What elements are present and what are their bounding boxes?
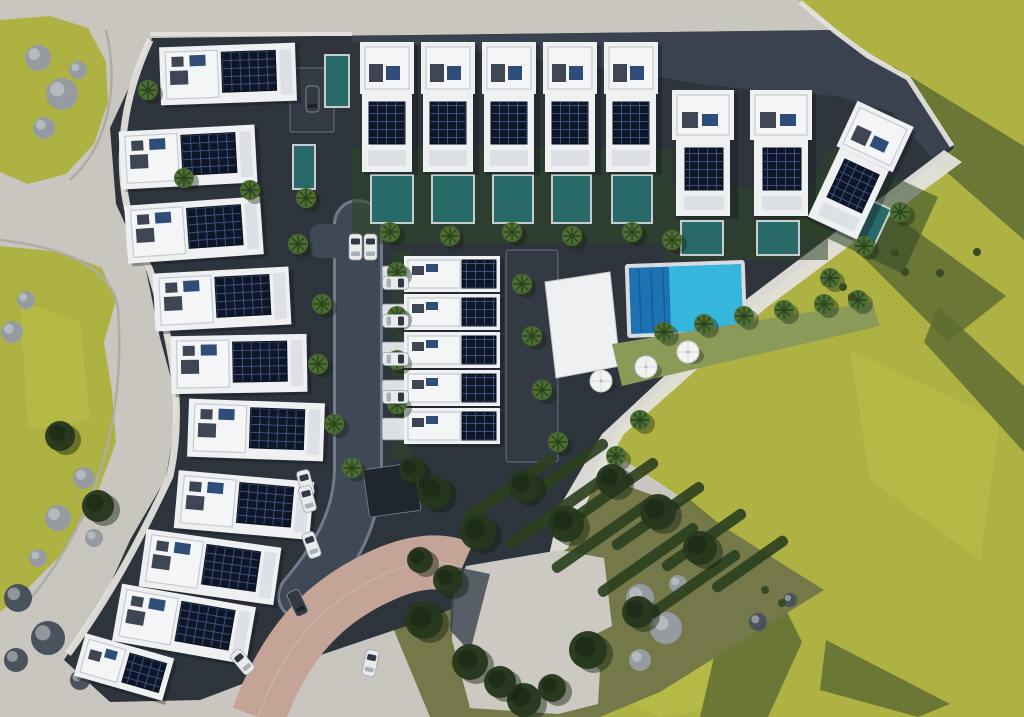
villa-roof-part xyxy=(171,57,183,67)
villa-solar-panel xyxy=(233,341,288,382)
villa-roof-part xyxy=(165,282,178,293)
plunge-pool-water xyxy=(326,56,348,106)
bush xyxy=(778,599,786,607)
car-body xyxy=(364,234,377,260)
palm-trunk-top xyxy=(395,270,400,275)
villa-roof-part xyxy=(369,64,383,82)
car-windshield xyxy=(398,279,404,288)
villa-roof-part xyxy=(185,495,204,511)
villa-roof-part xyxy=(218,409,234,421)
plunge-pool-water xyxy=(682,222,722,254)
car-rear-window xyxy=(351,252,360,257)
bush xyxy=(936,269,944,277)
villa-solar-panel xyxy=(181,133,237,176)
plunge-pool xyxy=(431,174,475,224)
bush xyxy=(839,283,847,291)
palm-trunk-top xyxy=(350,466,355,471)
villa-solar-panel xyxy=(215,275,271,318)
villa-roof-part xyxy=(447,66,461,80)
car-windshield xyxy=(351,239,360,245)
car xyxy=(306,86,319,112)
palm-trunk-top xyxy=(822,302,827,307)
villa-roof-part xyxy=(426,378,438,386)
tree-canopy-core xyxy=(541,677,556,692)
car-body xyxy=(383,277,409,290)
palm-trunk-top xyxy=(898,210,903,215)
villa-solar-panel xyxy=(462,412,496,440)
rock-highlight xyxy=(632,652,642,662)
car-windshield xyxy=(398,355,404,364)
car-rear-window xyxy=(308,104,317,109)
car-rear-window xyxy=(387,317,392,326)
villa-roof-part xyxy=(552,64,566,82)
villa-roof-part xyxy=(155,212,172,224)
rock-highlight xyxy=(28,48,40,60)
villa-roof-part xyxy=(189,55,205,67)
palm-trunk-top xyxy=(448,234,453,239)
car xyxy=(383,277,409,290)
villa-solar-panel xyxy=(249,408,304,450)
plunge-pool xyxy=(680,220,724,256)
villa-roof-part xyxy=(279,49,293,95)
car-windshield xyxy=(308,91,317,97)
car-rear-window xyxy=(387,355,392,364)
villa-roof-part xyxy=(170,70,188,85)
villa xyxy=(360,42,418,175)
villa-solar-panel xyxy=(202,544,261,591)
villa xyxy=(124,196,268,267)
tree-canopy-core xyxy=(437,569,454,586)
villa-roof-part xyxy=(491,64,505,82)
villa-solar-panel xyxy=(763,148,801,190)
villa-roof-part xyxy=(200,409,212,419)
villa-solar-panel xyxy=(613,102,649,144)
villa-solar-panel xyxy=(462,374,496,402)
villa-roof-part xyxy=(430,64,444,82)
plunge-pool-water xyxy=(758,222,798,254)
villa-solar-panel xyxy=(685,148,723,190)
villa-roof-part xyxy=(181,360,199,374)
rock-highlight xyxy=(48,508,60,520)
umbrella-pole xyxy=(599,379,602,382)
car-body xyxy=(383,315,409,328)
rock-highlight xyxy=(4,324,14,334)
villa xyxy=(543,42,601,175)
tree-canopy-core xyxy=(411,607,432,628)
bush xyxy=(761,586,769,594)
villa xyxy=(404,408,504,447)
palm-trunk-top xyxy=(856,298,861,303)
tree-canopy-core xyxy=(410,550,424,564)
umbrella-pole xyxy=(644,365,647,368)
villa-solar-panel xyxy=(186,205,243,249)
tree-canopy-core xyxy=(575,637,596,658)
villa xyxy=(750,90,816,219)
villa-roof-part xyxy=(780,114,796,126)
villa-roof-part xyxy=(164,296,183,311)
villa-roof-part xyxy=(426,302,438,310)
villa xyxy=(404,294,504,333)
bush xyxy=(973,248,981,256)
villa-roof-part xyxy=(630,66,644,80)
rock-highlight xyxy=(87,531,95,539)
palm-trunk-top xyxy=(630,230,635,235)
tree-canopy-core xyxy=(488,670,506,688)
rock-highlight xyxy=(71,63,79,71)
car-body xyxy=(349,234,362,260)
plunge-pool-water xyxy=(494,176,532,222)
palm-trunk-top xyxy=(182,176,187,181)
car xyxy=(383,315,409,328)
car-rear-window xyxy=(387,393,392,402)
villa-solar-panel xyxy=(369,102,405,144)
tree-canopy-core xyxy=(600,468,618,486)
site-render xyxy=(0,0,1024,717)
villa-roof-part xyxy=(198,423,216,438)
villa-roof-part xyxy=(207,482,224,494)
palm-trunk-top xyxy=(638,418,643,423)
villa-roof-part xyxy=(201,344,217,355)
rock-highlight xyxy=(35,625,50,640)
villa xyxy=(187,399,329,465)
villa-solar-panel xyxy=(462,260,496,288)
plunge-pool xyxy=(292,144,316,190)
villa-roof-part xyxy=(760,112,776,128)
palm-trunk-top xyxy=(520,282,525,287)
villa-roof-part xyxy=(149,138,166,150)
rock-highlight xyxy=(785,595,791,601)
rock-highlight xyxy=(36,120,46,130)
villa-roof-part xyxy=(426,264,438,272)
villa xyxy=(159,43,301,109)
tree-canopy-core xyxy=(626,600,644,618)
villa-roof-part xyxy=(183,280,200,292)
villa-roof-part xyxy=(569,66,583,80)
plunge-pool xyxy=(611,174,653,224)
tree-canopy-core xyxy=(645,499,665,519)
tree-canopy-core xyxy=(49,425,66,442)
villa xyxy=(171,334,312,397)
villa-roof-part xyxy=(412,266,424,275)
plunge-pool xyxy=(324,54,350,108)
villa-roof-part xyxy=(429,150,467,166)
rock-highlight xyxy=(8,588,21,601)
villa-solar-panel xyxy=(462,298,496,326)
aerial-render-page xyxy=(0,0,1024,717)
villa-roof-part xyxy=(137,214,150,225)
palm-trunk-top xyxy=(614,454,619,459)
plunge-pool xyxy=(756,220,800,256)
villa-roof-part xyxy=(490,150,528,166)
palm-trunk-top xyxy=(320,302,325,307)
palm-trunk-top xyxy=(670,238,675,243)
villa-roof-part xyxy=(412,342,424,351)
car-windshield xyxy=(398,317,404,326)
villa-roof-part xyxy=(412,418,424,427)
villa-solar-panel xyxy=(236,483,293,528)
palm-trunk-top xyxy=(540,388,545,393)
villa-roof-part xyxy=(551,150,589,166)
palm-trunk-top xyxy=(316,362,321,367)
bush xyxy=(891,249,899,257)
villa xyxy=(421,42,479,175)
bush xyxy=(848,293,856,301)
clubhouse-roof xyxy=(545,272,620,378)
plunge-pool xyxy=(551,174,592,224)
villa-roof-part xyxy=(136,228,155,243)
villa-roof-part xyxy=(291,340,304,386)
rock-highlight xyxy=(76,470,86,480)
villa xyxy=(482,42,540,175)
villa-roof-part xyxy=(273,273,287,320)
rock-highlight xyxy=(7,651,18,662)
rock-highlight xyxy=(671,577,679,585)
tree-canopy-core xyxy=(86,494,104,512)
villa-roof-part xyxy=(130,154,149,169)
umbrella-pole xyxy=(686,350,689,353)
villa-roof-part xyxy=(156,540,169,552)
villa-roof-part xyxy=(412,380,424,389)
villa-roof-part xyxy=(130,596,144,608)
villa-roof-part xyxy=(682,112,698,128)
villa-roof-part xyxy=(762,196,802,210)
palm-trunk-top xyxy=(828,276,833,281)
palm-trunk-top xyxy=(862,244,867,249)
rock-highlight xyxy=(751,615,759,623)
rock-highlight xyxy=(31,551,39,559)
palm-trunk-top xyxy=(782,308,787,313)
villa-solar-panel xyxy=(175,601,235,650)
tree-canopy-core xyxy=(553,511,573,531)
rock-highlight xyxy=(19,293,27,301)
villa-roof-part xyxy=(151,554,171,570)
villa-roof-part xyxy=(508,66,522,80)
villa-roof-part xyxy=(386,66,400,80)
villa xyxy=(404,370,504,409)
villa-roof-part xyxy=(426,416,438,424)
palm-trunk-top xyxy=(662,330,667,335)
villa-roof-part xyxy=(412,304,424,313)
plunge-pool-water xyxy=(553,176,590,222)
palm-trunk-top xyxy=(556,440,561,445)
car-body xyxy=(306,86,319,112)
car-windshield xyxy=(398,393,404,402)
car xyxy=(364,234,377,260)
palm-trunk-top xyxy=(570,234,575,239)
villa-solar-panel xyxy=(221,50,276,92)
villa-solar-panel xyxy=(491,102,527,144)
palm-trunk-top xyxy=(332,422,337,427)
palm-trunk-top xyxy=(742,314,747,319)
car-rear-window xyxy=(366,252,375,257)
villa-solar-panel xyxy=(430,102,466,144)
villa xyxy=(404,256,504,295)
villa-roof-part xyxy=(131,140,144,151)
villa xyxy=(153,266,296,334)
plunge-pool-water xyxy=(372,176,412,222)
villa-solar-panel xyxy=(462,336,496,364)
bush xyxy=(901,268,909,276)
plunge-pool-water xyxy=(433,176,473,222)
palm-trunk-top xyxy=(510,230,515,235)
villa-roof-part xyxy=(702,114,718,126)
plunge-pool-water xyxy=(613,176,651,222)
tree-canopy-core xyxy=(457,649,477,669)
villa xyxy=(173,470,318,543)
rock-highlight xyxy=(50,82,64,96)
plunge-pool xyxy=(492,174,534,224)
palm-trunk-top xyxy=(304,196,309,201)
car-windshield xyxy=(366,239,375,245)
villa xyxy=(672,90,738,219)
car xyxy=(383,391,409,404)
car-body xyxy=(383,391,409,404)
villa-roof-part xyxy=(612,150,650,166)
tree-canopy-core xyxy=(688,536,707,555)
palm-trunk-top xyxy=(146,88,151,93)
villa xyxy=(404,332,504,371)
villa xyxy=(604,42,662,175)
villa-roof-part xyxy=(684,196,724,210)
car xyxy=(383,353,409,366)
villa-roof-part xyxy=(174,542,191,555)
palm-trunk-top xyxy=(388,230,393,235)
palm-trunk-top xyxy=(248,188,253,193)
palm-trunk-top xyxy=(702,322,707,327)
villa-roof-part xyxy=(368,150,406,166)
villa-roof-part xyxy=(189,481,202,492)
villa-roof-part xyxy=(183,346,195,356)
villa-solar-panel xyxy=(552,102,588,144)
villa-roof-part xyxy=(307,409,321,455)
villa-roof-part xyxy=(426,340,438,348)
palm-trunk-top xyxy=(530,334,535,339)
tree-canopy-core xyxy=(512,474,530,492)
palm-trunk-top xyxy=(296,242,301,247)
plunge-pool-water xyxy=(294,146,314,188)
car-rear-window xyxy=(387,279,392,288)
villa-roof-part xyxy=(613,64,627,82)
tree-canopy-core xyxy=(465,519,485,539)
car xyxy=(349,234,362,260)
plunge-pool xyxy=(370,174,414,224)
villa-roof-part xyxy=(239,131,253,178)
car-body xyxy=(383,353,409,366)
tree-canopy-core xyxy=(402,460,416,474)
